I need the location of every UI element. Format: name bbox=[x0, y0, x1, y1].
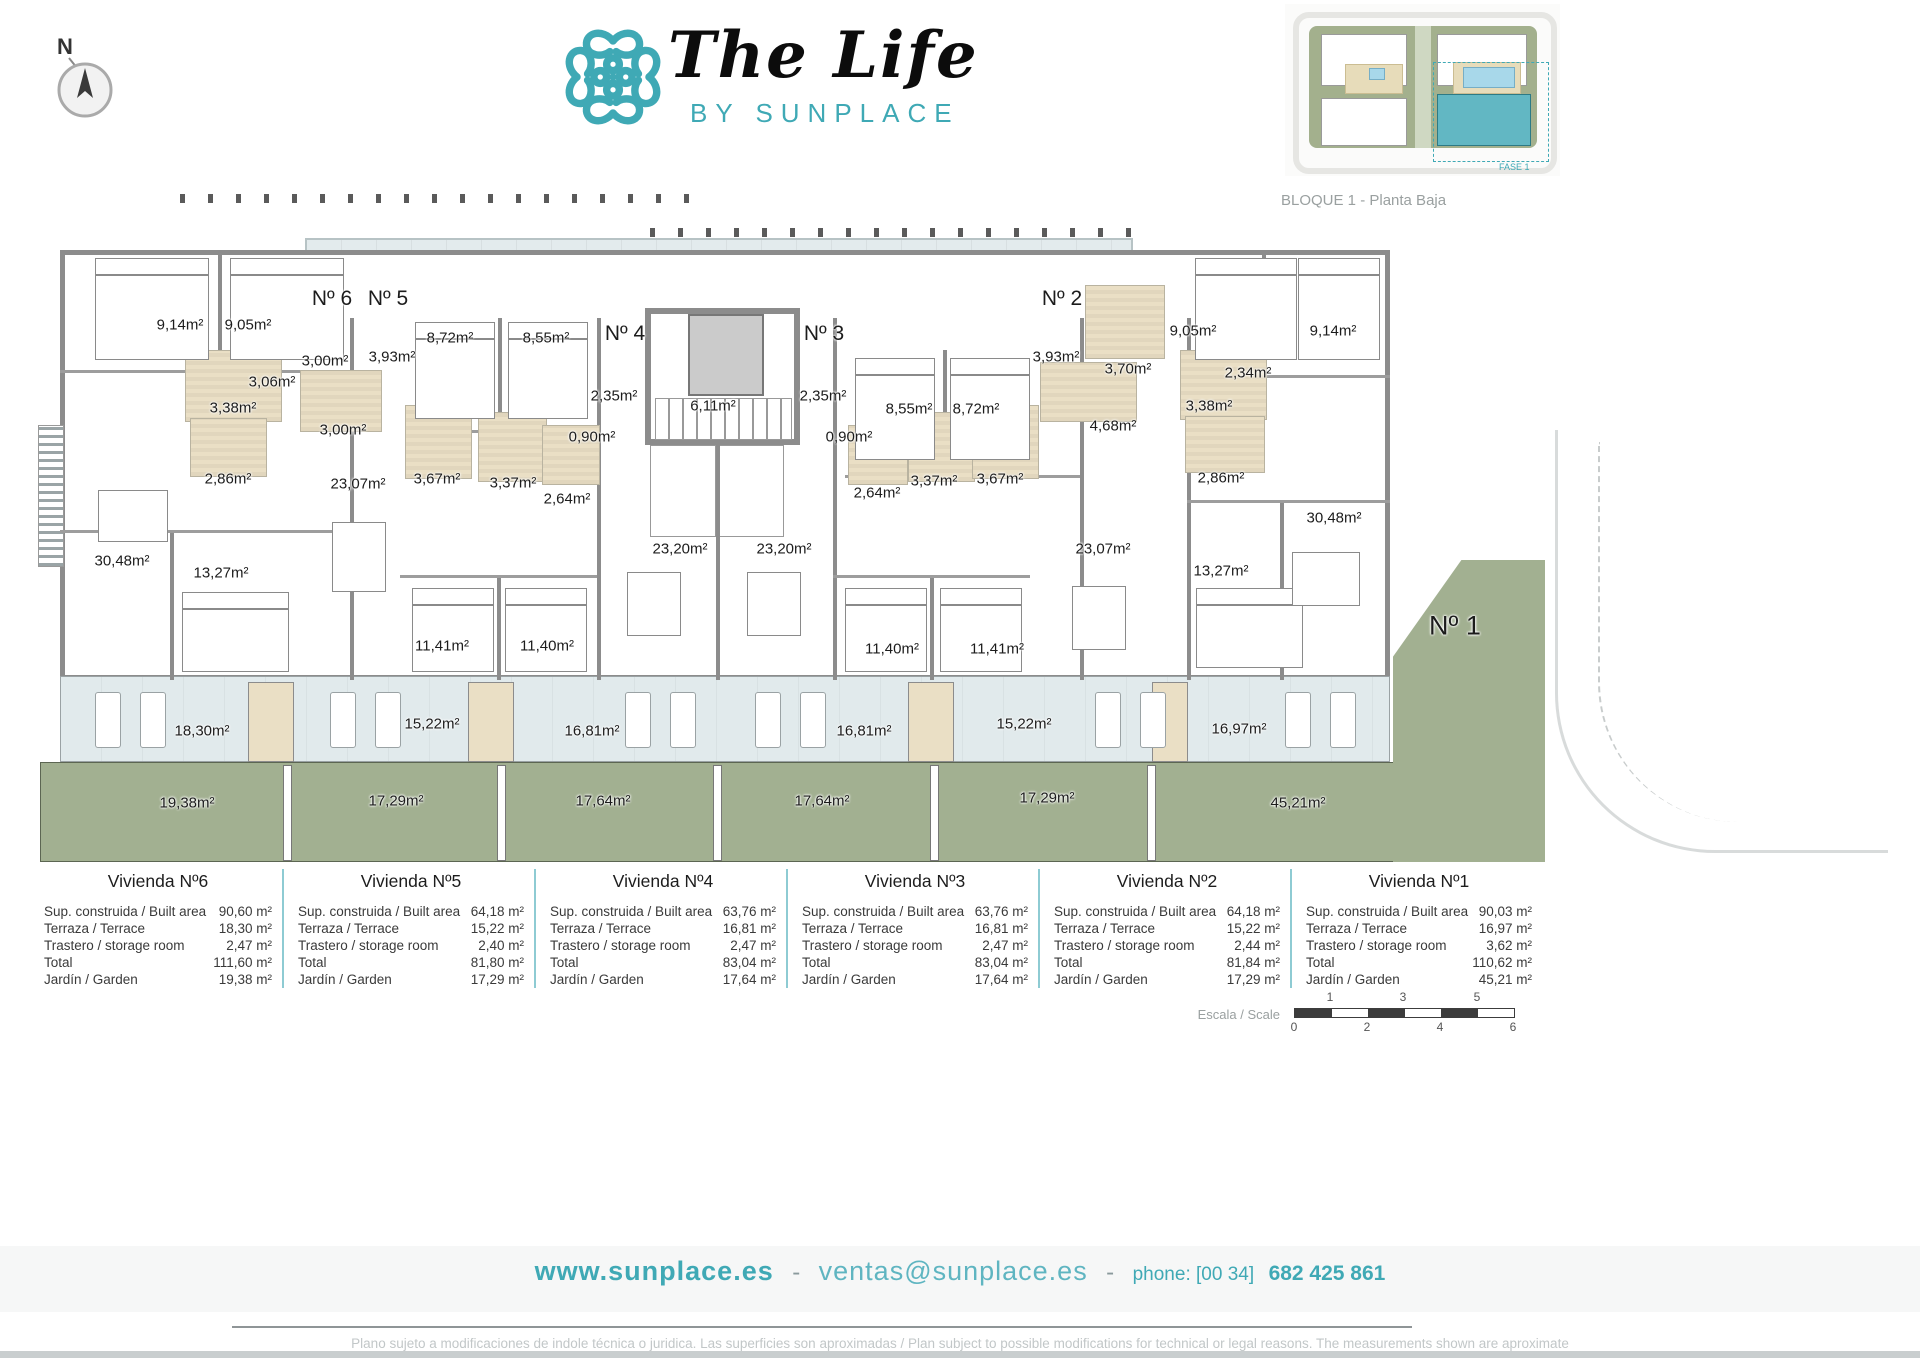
row-value: 2,44 m² bbox=[1234, 937, 1280, 954]
compass-n-label: N bbox=[57, 34, 73, 59]
room-area-label: 6,11m² bbox=[690, 398, 736, 415]
row-label: Total bbox=[1306, 954, 1335, 971]
bed-furniture bbox=[845, 588, 927, 672]
unit-table-row: Sup. construida / Built area64,18 m² bbox=[1054, 903, 1280, 920]
wall bbox=[1187, 500, 1390, 503]
room-area-label: 8,55m² bbox=[886, 401, 933, 418]
site-small-pool bbox=[1369, 68, 1385, 80]
unit-table-row: Trastero / storage room2,47 m² bbox=[550, 937, 776, 954]
entrance-label: Nº 2 bbox=[1042, 287, 1082, 311]
wall bbox=[170, 530, 174, 680]
row-value: 3,62 m² bbox=[1486, 937, 1532, 954]
unit-table-row: Sup. construida / Built area63,76 m² bbox=[550, 903, 776, 920]
room-area-label: 8,72m² bbox=[953, 401, 1000, 418]
row-value: 17,29 m² bbox=[471, 971, 524, 988]
garden-separator bbox=[1147, 765, 1156, 861]
sun-lounger bbox=[800, 692, 826, 748]
phone-number[interactable]: 682 425 861 bbox=[1259, 1262, 1386, 1285]
row-label: Trastero / storage room bbox=[1306, 937, 1447, 954]
scale-label: Escala / Scale bbox=[1120, 1007, 1280, 1022]
garden-separator bbox=[497, 765, 506, 861]
room-area-label: 11,40m² bbox=[520, 638, 574, 655]
unit-table-row: Total81,80 m² bbox=[298, 954, 524, 971]
row-label: Sup. construida / Built area bbox=[1054, 903, 1216, 920]
site-plan-thumbnail: FASE 1 bbox=[1285, 4, 1560, 176]
bed-furniture bbox=[1195, 258, 1297, 360]
row-value: 45,21 m² bbox=[1479, 971, 1532, 988]
sun-lounger bbox=[755, 692, 781, 748]
garden-band bbox=[40, 762, 1545, 862]
table-furniture bbox=[1072, 586, 1126, 650]
unit-table-row: Terraza / Terrace15,22 m² bbox=[298, 920, 524, 937]
wall bbox=[716, 445, 720, 680]
room-area-label: 3,93m² bbox=[1033, 349, 1080, 366]
unit-table-row: Sup. construida / Built area64,18 m² bbox=[298, 903, 524, 920]
entrance-label: Nº 6 bbox=[312, 287, 352, 311]
row-value: 16,97 m² bbox=[1479, 920, 1532, 937]
garden-area-label: 45,21m² bbox=[1270, 795, 1325, 812]
row-label: Jardín / Garden bbox=[298, 971, 392, 988]
sun-lounger bbox=[1140, 692, 1166, 748]
room-area-label: 3,00m² bbox=[302, 353, 349, 370]
row-label: Total bbox=[298, 954, 327, 971]
garden-unit1 bbox=[1393, 560, 1545, 862]
row-value: 81,80 m² bbox=[471, 954, 524, 971]
unit-title: Vivienda Nº6 bbox=[44, 871, 272, 892]
entrance-label: Nº 4 bbox=[605, 322, 645, 346]
sun-lounger bbox=[1330, 692, 1356, 748]
stair-core bbox=[645, 308, 800, 445]
site-fase-label: FASE 1 bbox=[1499, 162, 1530, 172]
room-area-label: 11,40m² bbox=[865, 641, 919, 658]
row-value: 18,30 m² bbox=[219, 920, 272, 937]
unit-table-row: Jardín / Garden17,64 m² bbox=[802, 971, 1028, 988]
room-area-label: 0,90m² bbox=[569, 429, 616, 446]
scale-segment bbox=[1441, 1009, 1478, 1017]
room-area-label: 2,86m² bbox=[205, 471, 252, 488]
bottom-strip bbox=[0, 1351, 1920, 1358]
row-label: Trastero / storage room bbox=[550, 937, 691, 954]
garden-area-label: 17,29m² bbox=[1019, 790, 1074, 807]
row-value: 2,40 m² bbox=[478, 937, 524, 954]
sun-lounger bbox=[95, 692, 121, 748]
garden-area-label: 17,64m² bbox=[575, 793, 630, 810]
unit-table-row: Trastero / storage room2,47 m² bbox=[44, 937, 272, 954]
table-furniture bbox=[1292, 552, 1360, 606]
room-area-label: 0,90m² bbox=[826, 429, 873, 446]
room-area-label: 2,64m² bbox=[854, 485, 901, 502]
scale-segment bbox=[1295, 1009, 1332, 1017]
row-label: Jardín / Garden bbox=[44, 971, 138, 988]
row-value: 63,76 m² bbox=[723, 903, 776, 920]
sun-lounger bbox=[140, 692, 166, 748]
garden-separator bbox=[713, 765, 722, 861]
scale-segment bbox=[1368, 1009, 1405, 1017]
row-label: Total bbox=[550, 954, 579, 971]
room-area-label: 23,20m² bbox=[652, 541, 707, 558]
email-link[interactable]: ventas@sunplace.es bbox=[819, 1256, 1088, 1286]
scale-tick: 0 bbox=[1291, 1020, 1298, 1034]
row-value: 17,29 m² bbox=[1227, 971, 1280, 988]
road-curve-dashed bbox=[1598, 442, 1890, 822]
room-area-label: 11,41m² bbox=[970, 641, 1024, 658]
scale-tick: 6 bbox=[1510, 1020, 1517, 1034]
row-label: Sup. construida / Built area bbox=[550, 903, 712, 920]
separator: - bbox=[778, 1259, 814, 1286]
room-area-label: 9,05m² bbox=[1170, 323, 1217, 340]
scale-segment bbox=[1405, 1009, 1442, 1017]
room-area-label: 3,38m² bbox=[1186, 398, 1233, 415]
room-area-label: 3,37m² bbox=[490, 475, 537, 492]
brand-subtitle: BY SUNPLACE bbox=[690, 98, 960, 129]
unit-table: Vivienda Nº4Sup. construida / Built area… bbox=[534, 869, 786, 988]
row-label: Jardín / Garden bbox=[1054, 971, 1148, 988]
unit-table-row: Trastero / storage room2,40 m² bbox=[298, 937, 524, 954]
wall bbox=[930, 575, 934, 680]
sun-lounger bbox=[330, 692, 356, 748]
unit-table-row: Jardín / Garden17,29 m² bbox=[1054, 971, 1280, 988]
row-label: Sup. construida / Built area bbox=[1306, 903, 1468, 920]
unit-table-row: Total111,60 m² bbox=[44, 954, 272, 971]
room-area-label: 13,27m² bbox=[1193, 563, 1248, 580]
room-area-label: 3,67m² bbox=[414, 471, 461, 488]
wall bbox=[597, 318, 601, 680]
unit-title: Vivienda Nº1 bbox=[1306, 871, 1532, 892]
unit-table-row: Total83,04 m² bbox=[802, 954, 1028, 971]
contact-bar: www.sunplace.es - ventas@sunplace.es - p… bbox=[0, 1256, 1920, 1287]
row-value: 64,18 m² bbox=[1227, 903, 1280, 920]
garden-area-label: 17,64m² bbox=[794, 793, 849, 810]
brand-title: The Life bbox=[668, 18, 979, 93]
row-label: Terraza / Terrace bbox=[1306, 920, 1407, 937]
room-area-label: 30,48m² bbox=[1306, 510, 1361, 527]
row-label: Terraza / Terrace bbox=[1054, 920, 1155, 937]
terrace-area-label: 16,81m² bbox=[836, 723, 891, 740]
bed-furniture bbox=[412, 588, 494, 672]
row-label: Trastero / storage room bbox=[802, 937, 943, 954]
row-label: Trastero / storage room bbox=[44, 937, 185, 954]
row-label: Sup. construida / Built area bbox=[44, 903, 206, 920]
website-link[interactable]: www.sunplace.es bbox=[535, 1256, 774, 1286]
entrance-label: Nº 5 bbox=[368, 287, 408, 311]
garden-area-label: 17,29m² bbox=[368, 793, 423, 810]
room-area-label: 4,68m² bbox=[1090, 418, 1137, 435]
row-label: Sup. construida / Built area bbox=[802, 903, 964, 920]
site-central-path bbox=[1415, 26, 1431, 148]
unit-table-row: Terraza / Terrace16,81 m² bbox=[550, 920, 776, 937]
row-value: 64,18 m² bbox=[471, 903, 524, 920]
row-value: 15,22 m² bbox=[1227, 920, 1280, 937]
unit-table: Vivienda Nº1Sup. construida / Built area… bbox=[1290, 869, 1542, 988]
bath-area bbox=[190, 418, 267, 477]
row-value: 15,22 m² bbox=[471, 920, 524, 937]
row-label: Jardín / Garden bbox=[802, 971, 896, 988]
bed-furniture bbox=[95, 258, 209, 360]
row-value: 81,84 m² bbox=[1227, 954, 1280, 971]
garden-area-label: 19,38m² bbox=[159, 795, 214, 812]
unit-table: Vivienda Nº5Sup. construida / Built area… bbox=[282, 869, 534, 988]
entrance-label: Nº 3 bbox=[804, 322, 844, 346]
unit-table-row: Terraza / Terrace16,97 m² bbox=[1306, 920, 1532, 937]
room-area-label: 3,37m² bbox=[911, 473, 958, 490]
row-label: Total bbox=[1054, 954, 1083, 971]
row-value: 90,03 m² bbox=[1479, 903, 1532, 920]
room-area-label: 23,07m² bbox=[1075, 541, 1130, 558]
scale-segment bbox=[1332, 1009, 1369, 1017]
row-value: 83,04 m² bbox=[723, 954, 776, 971]
room-area-label: 3,00m² bbox=[320, 422, 367, 439]
room-area-label: 11,41m² bbox=[415, 638, 469, 655]
site-fase-boundary bbox=[1433, 62, 1549, 162]
scale-tick: 4 bbox=[1437, 1020, 1444, 1034]
elevator bbox=[688, 314, 764, 396]
bath-area bbox=[1185, 416, 1265, 473]
brand-knot-icon bbox=[560, 22, 666, 132]
row-value: 16,81 m² bbox=[723, 920, 776, 937]
row-value: 17,64 m² bbox=[975, 971, 1028, 988]
storage-room bbox=[248, 682, 294, 762]
unit-table-row: Terraza / Terrace18,30 m² bbox=[44, 920, 272, 937]
bath-area bbox=[1085, 285, 1165, 359]
garden-separator bbox=[930, 765, 939, 861]
compass-north-icon: N bbox=[45, 32, 125, 124]
terrace-area-label: 16,97m² bbox=[1211, 721, 1266, 738]
sun-lounger bbox=[1285, 692, 1311, 748]
garden-separator bbox=[283, 765, 292, 861]
row-label: Terraza / Terrace bbox=[550, 920, 651, 937]
wall bbox=[833, 318, 837, 680]
row-label: Terraza / Terrace bbox=[298, 920, 399, 937]
unit-table: Vivienda Nº2Sup. construida / Built area… bbox=[1038, 869, 1290, 988]
row-value: 63,76 m² bbox=[975, 903, 1028, 920]
unit-table: Vivienda Nº6Sup. construida / Built area… bbox=[30, 869, 282, 988]
unit-title: Vivienda Nº5 bbox=[298, 871, 524, 892]
wall bbox=[833, 575, 1030, 578]
row-label: Sup. construida / Built area bbox=[298, 903, 460, 920]
bed-furniture bbox=[505, 588, 587, 672]
room-area-label: 2,34m² bbox=[1225, 365, 1272, 382]
unit-table-row: Jardín / Garden17,64 m² bbox=[550, 971, 776, 988]
unit-table-row: Trastero / storage room2,47 m² bbox=[802, 937, 1028, 954]
terrace-area-label: 18,30m² bbox=[174, 723, 229, 740]
row-value: 2,47 m² bbox=[226, 937, 272, 954]
scale-tick: 1 bbox=[1327, 990, 1334, 1004]
unit-title: Vivienda Nº3 bbox=[802, 871, 1028, 892]
scale-tick: 3 bbox=[1400, 990, 1407, 1004]
bed-furniture bbox=[182, 592, 289, 672]
sun-lounger bbox=[625, 692, 651, 748]
row-label: Trastero / storage room bbox=[1054, 937, 1195, 954]
row-value: 83,04 m² bbox=[975, 954, 1028, 971]
row-label: Total bbox=[802, 954, 831, 971]
unit-table-row: Terraza / Terrace15,22 m² bbox=[1054, 920, 1280, 937]
table-furniture bbox=[627, 572, 681, 636]
row-label: Trastero / storage room bbox=[298, 937, 439, 954]
unit-title: Vivienda Nº2 bbox=[1054, 871, 1280, 892]
storage-room bbox=[908, 682, 954, 762]
divider-line bbox=[232, 1326, 1412, 1328]
unit-table-row: Total110,62 m² bbox=[1306, 954, 1532, 971]
terrace-area-label: 15,22m² bbox=[404, 716, 459, 733]
wall bbox=[497, 575, 501, 680]
room-area-label: 23,07m² bbox=[330, 476, 385, 493]
room-area-label: 9,05m² bbox=[225, 317, 272, 334]
room-area-label: 2,64m² bbox=[544, 491, 591, 508]
sun-lounger bbox=[1095, 692, 1121, 748]
kitchen-counter bbox=[650, 445, 716, 537]
bed-furniture bbox=[940, 588, 1022, 672]
pergola-louvre bbox=[38, 425, 64, 567]
sun-lounger bbox=[670, 692, 696, 748]
row-value: 110,62 m² bbox=[1472, 954, 1532, 971]
room-area-label: 9,14m² bbox=[1310, 323, 1357, 340]
sun-lounger bbox=[375, 692, 401, 748]
bath-area bbox=[478, 412, 547, 482]
site-building bbox=[1321, 98, 1407, 146]
floor-plan: 9,14m²9,05m²3,06m²3,00m²3,93m²8,72m²8,55… bbox=[0, 190, 1920, 880]
row-label: Terraza / Terrace bbox=[802, 920, 903, 937]
scale-bar bbox=[1294, 1008, 1515, 1018]
unit-table-row: Trastero / storage room3,62 m² bbox=[1306, 937, 1532, 954]
unit-title: Vivienda Nº4 bbox=[550, 871, 776, 892]
room-area-label: 3,70m² bbox=[1105, 361, 1152, 378]
terrace-area-label: 16,81m² bbox=[564, 723, 619, 740]
storage-room bbox=[468, 682, 514, 762]
table-furniture bbox=[332, 522, 386, 592]
unit-table-row: Sup. construida / Built area63,76 m² bbox=[802, 903, 1028, 920]
bed-furniture bbox=[1196, 588, 1303, 668]
room-area-label: 13,27m² bbox=[193, 565, 248, 582]
room-area-label: 2,35m² bbox=[800, 388, 847, 405]
unit-table-row: Total83,04 m² bbox=[550, 954, 776, 971]
room-area-label: 8,55m² bbox=[523, 330, 570, 347]
row-label: Terraza / Terrace bbox=[44, 920, 145, 937]
kitchen-counter bbox=[718, 445, 784, 537]
facade-ticks bbox=[650, 228, 1138, 237]
unit-table-row: Jardín / Garden45,21 m² bbox=[1306, 971, 1532, 988]
scale-segment bbox=[1478, 1009, 1515, 1017]
unit-table-row: Total81,84 m² bbox=[1054, 954, 1280, 971]
unit-table-row: Jardín / Garden17,29 m² bbox=[298, 971, 524, 988]
room-area-label: 2,35m² bbox=[591, 388, 638, 405]
unit-table: Vivienda Nº3Sup. construida / Built area… bbox=[786, 869, 1038, 988]
room-area-label: 9,14m² bbox=[157, 317, 204, 334]
room-area-label: 2,86m² bbox=[1198, 470, 1245, 487]
unit-table-row: Trastero / storage room2,44 m² bbox=[1054, 937, 1280, 954]
row-label: Total bbox=[44, 954, 73, 971]
row-value: 90,60 m² bbox=[219, 903, 272, 920]
facade-ticks bbox=[180, 194, 700, 203]
plan-sheet: N The Life BY SUNPLACE bbox=[0, 0, 1920, 1358]
room-area-label: 3,06m² bbox=[249, 374, 296, 391]
unit-table-row: Sup. construida / Built area90,60 m² bbox=[44, 903, 272, 920]
room-area-label: 30,48m² bbox=[94, 553, 149, 570]
table-furniture bbox=[747, 572, 801, 636]
scale-tick: 5 bbox=[1474, 990, 1481, 1004]
unit-table-row: Terraza / Terrace16,81 m² bbox=[802, 920, 1028, 937]
row-value: 2,47 m² bbox=[730, 937, 776, 954]
scale-tick: 2 bbox=[1364, 1020, 1371, 1034]
unit-table-row: Sup. construida / Built area90,03 m² bbox=[1306, 903, 1532, 920]
room-area-label: 3,67m² bbox=[977, 471, 1024, 488]
unit-summary-tables: Vivienda Nº6Sup. construida / Built area… bbox=[30, 869, 1542, 988]
bed-furniture bbox=[1298, 258, 1380, 360]
separator: - bbox=[1092, 1259, 1128, 1286]
room-area-label: 3,93m² bbox=[369, 349, 416, 366]
terrace-area-label: 15,22m² bbox=[996, 716, 1051, 733]
wall bbox=[400, 575, 597, 578]
room-area-label: 23,20m² bbox=[756, 541, 811, 558]
row-value: 16,81 m² bbox=[975, 920, 1028, 937]
room-area-label: 3,38m² bbox=[210, 400, 257, 417]
phone-prefix: phone: [00 34] bbox=[1133, 1264, 1255, 1285]
row-value: 2,47 m² bbox=[982, 937, 1028, 954]
row-value: 17,64 m² bbox=[723, 971, 776, 988]
room-area-label: 8,72m² bbox=[427, 330, 474, 347]
entrance-label: Nº 1 bbox=[1429, 611, 1481, 642]
row-value: 111,60 m² bbox=[213, 954, 272, 971]
row-value: 19,38 m² bbox=[219, 971, 272, 988]
unit-table-row: Jardín / Garden19,38 m² bbox=[44, 971, 272, 988]
disclaimer-text: Plano sujeto a modificaciones de indole … bbox=[0, 1336, 1920, 1351]
row-label: Jardín / Garden bbox=[550, 971, 644, 988]
row-label: Jardín / Garden bbox=[1306, 971, 1400, 988]
table-furniture bbox=[98, 490, 168, 542]
